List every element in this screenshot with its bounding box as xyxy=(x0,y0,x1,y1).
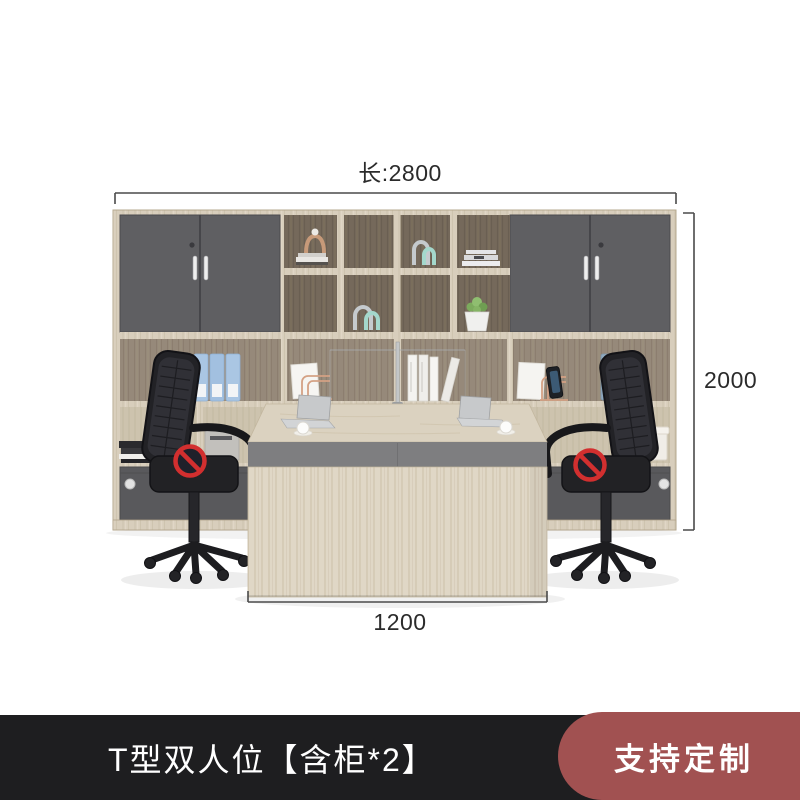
product-illustration xyxy=(0,0,800,800)
drawer-knob xyxy=(125,479,135,489)
no-copy-badge-left xyxy=(174,445,206,477)
middle-shelf-band xyxy=(120,332,670,407)
keyhole-icon xyxy=(598,242,603,247)
door-handle xyxy=(204,256,208,280)
divider-pole xyxy=(396,342,399,404)
decor-book-stack xyxy=(462,250,500,266)
door-handle xyxy=(193,256,197,280)
drawer-knob xyxy=(659,479,669,489)
customize-badge[interactable]: 支持定制 xyxy=(558,712,800,800)
dim-line-length xyxy=(115,193,676,204)
desk-front-panel xyxy=(248,467,547,597)
product-caption: T型双人位【含柜*2】 xyxy=(108,715,436,800)
left-cabinet-doors xyxy=(120,215,280,332)
dim-line-height xyxy=(683,213,694,530)
door-handle xyxy=(595,256,599,280)
dimension-depth-label: 1200 xyxy=(330,610,470,634)
door-handle xyxy=(584,256,588,280)
right-cabinet-doors xyxy=(510,215,670,332)
no-copy-badge-right xyxy=(574,449,606,481)
product-image: 长:2800 2000 1200 T型双人位【含柜*2】 支持定制 xyxy=(0,0,800,800)
dimension-height-label: 2000 xyxy=(704,368,757,392)
binders-blue-left xyxy=(194,354,240,401)
display-cubbies xyxy=(284,215,510,332)
keyhole-icon xyxy=(189,242,194,247)
dimension-length-label: 长:2800 xyxy=(330,161,470,185)
